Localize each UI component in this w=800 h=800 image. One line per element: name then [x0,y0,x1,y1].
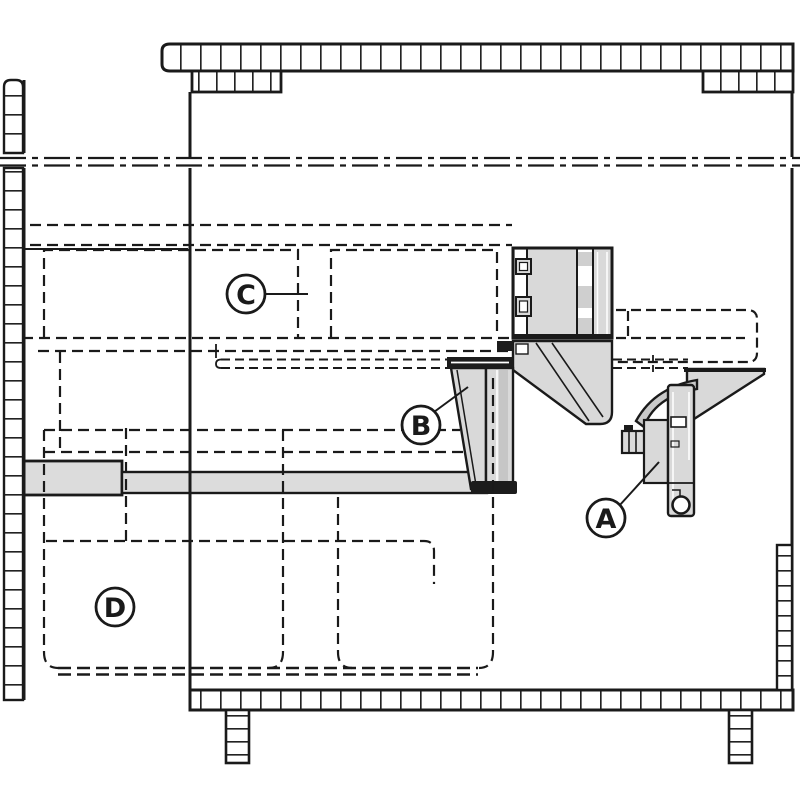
damper-connector-nub [624,425,633,431]
frame-profile-right-inner [616,311,745,338]
bottom-panel-section [190,690,793,710]
bracket-a-assembly [622,369,766,516]
callout-c-letter: C [236,280,256,311]
chute-notch [516,344,528,354]
frame-box-channel-block-3 [577,318,593,336]
callout-b-letter: B [411,411,432,442]
funnel-column-inner [499,370,508,487]
bin-outline-upper-right [331,250,497,337]
bin-lower-right-left-wall [338,497,352,668]
damper-connector [622,431,645,453]
worktop-subrail-left-section [192,71,281,92]
technical-drawing-canvas: A B C D [0,0,800,800]
bin-d-top-line [46,541,434,584]
worktop-main-section [162,44,793,71]
runner-rail-bar [122,472,487,493]
worktop-sections [162,44,793,92]
chute-dark-step [497,341,513,351]
callout-d-letter: D [104,593,126,624]
bracket-b-assembly [447,248,612,668]
adjustable-foot-left [226,710,249,763]
frame-box-channel-block-1 [577,252,593,266]
frame-box-clip-2-inner [520,301,528,312]
diagram-svg: A B C D [0,0,800,800]
damper-screw-hole [673,497,690,514]
plinth-sections [190,545,793,763]
left-wall-lower [4,168,23,700]
callout-a-letter: A [596,504,617,535]
adjustable-foot-right [729,710,752,763]
frame-box-channel-block-2 [577,286,593,308]
runner-rail-block [23,461,122,495]
left-wall-upper [4,80,23,153]
bin-d-right-wall [269,430,283,668]
frame-profile-right-dashed [616,310,757,362]
left-wall-section [4,80,24,700]
right-post-section [777,545,792,690]
damper-rail-clip [671,417,686,427]
worktop-subrail-right-section [703,71,793,92]
center-lines [0,158,800,166]
frame-box-clip-1-inner [520,263,528,271]
pullout-runner-rail [23,461,487,495]
frame-rail-hidden-cap [216,360,221,369]
